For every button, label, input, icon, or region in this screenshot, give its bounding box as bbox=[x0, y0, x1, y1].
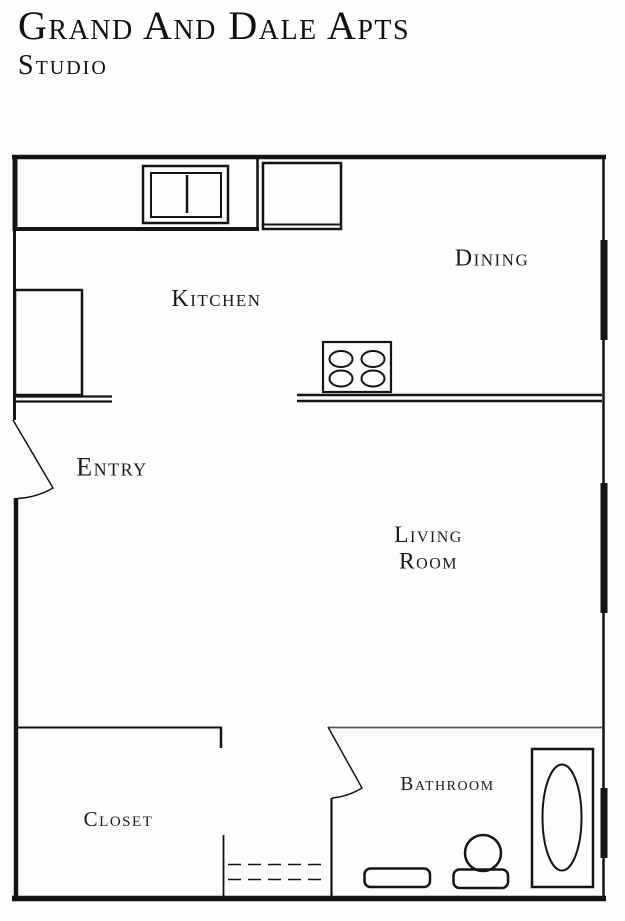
dining-window-icon bbox=[601, 240, 608, 340]
toilet-icon bbox=[454, 835, 509, 888]
bathroom-label: Bathroom bbox=[400, 774, 494, 795]
stove-icon bbox=[323, 342, 391, 392]
living-room-label-line1: Living bbox=[394, 522, 463, 548]
kitchen-sink-icon bbox=[143, 166, 228, 223]
stove-burner bbox=[330, 371, 353, 387]
toilet-tank bbox=[454, 870, 509, 889]
bathtub-basin bbox=[543, 765, 582, 871]
kitchen-fixtures bbox=[13, 159, 602, 402]
living-room-label-line2: Room bbox=[399, 549, 458, 575]
stove-burner bbox=[362, 371, 385, 387]
room-labels: Kitchen Dining Entry Living Room Closet … bbox=[76, 246, 529, 832]
dining-counter bbox=[297, 395, 602, 401]
refrigerator-icon bbox=[263, 163, 341, 229]
refrigerator-outline bbox=[263, 163, 341, 229]
entry-door-swing-icon bbox=[13, 420, 53, 499]
kitchen-label: Kitchen bbox=[171, 286, 261, 312]
bathtub-outline bbox=[532, 749, 593, 887]
left-counter bbox=[13, 397, 112, 402]
bathroom-window-icon bbox=[601, 788, 608, 858]
bathroom-fixtures bbox=[365, 749, 594, 888]
closet-walls bbox=[14, 727, 322, 899]
stove-burner bbox=[362, 351, 385, 367]
stove-burner bbox=[330, 351, 353, 367]
floor-plan-drawing: Kitchen Dining Entry Living Room Closet … bbox=[0, 0, 625, 921]
bathroom-walls bbox=[328, 727, 602, 898]
bathroom-sink-icon bbox=[365, 869, 431, 888]
entry-label: Entry bbox=[76, 453, 147, 482]
living-room-window-icon bbox=[601, 483, 608, 613]
closet-label: Closet bbox=[84, 807, 154, 831]
bathroom-door-swing-icon bbox=[328, 727, 362, 798]
bathtub-icon bbox=[532, 749, 593, 887]
toilet-bowl bbox=[465, 835, 501, 871]
pantry-cabinet-icon bbox=[15, 290, 82, 395]
floor-plan-page: Grand And Dale Apts Studio bbox=[0, 0, 625, 921]
kitchen-sink-outer bbox=[143, 166, 228, 223]
dining-label: Dining bbox=[455, 246, 530, 272]
